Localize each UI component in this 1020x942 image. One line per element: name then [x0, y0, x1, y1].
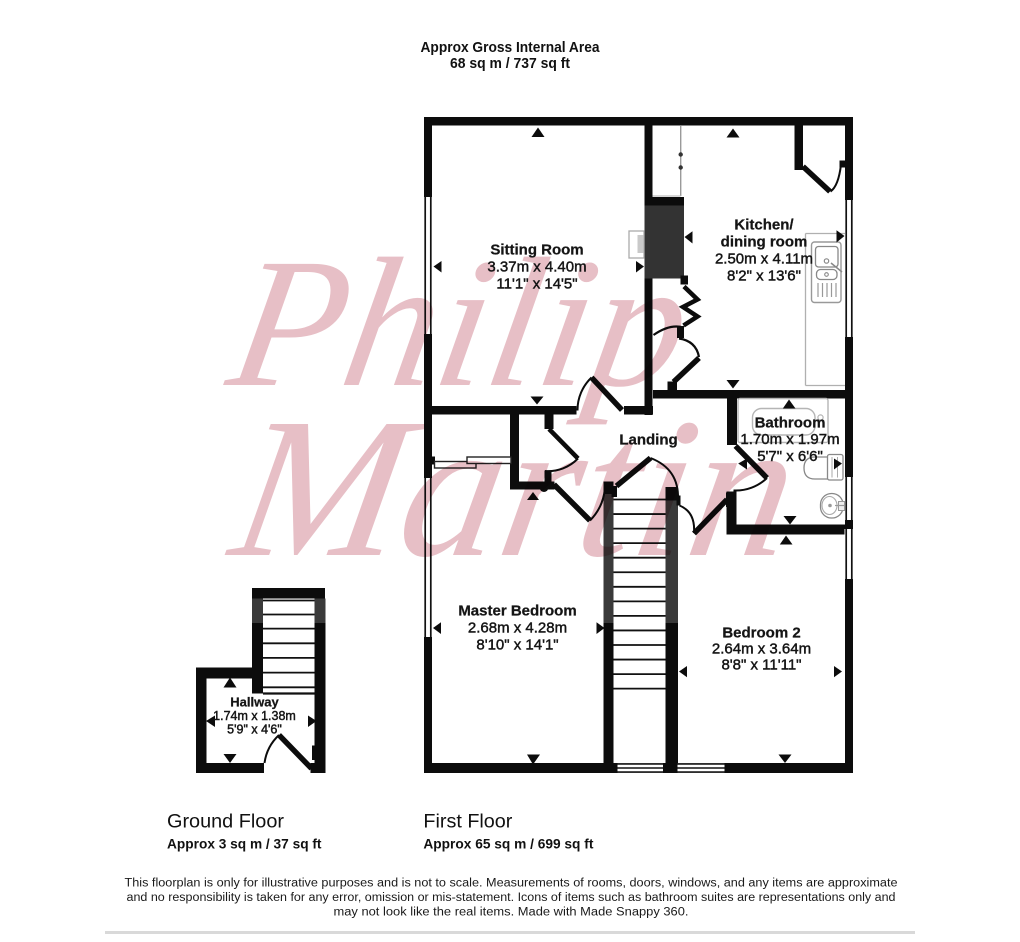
svg-text:Bathroom: Bathroom: [755, 415, 826, 432]
svg-text:Bedroom 2: Bedroom 2: [722, 625, 800, 642]
svg-text:dining room: dining room: [721, 234, 808, 251]
svg-text:1.74m x 1.38m: 1.74m x 1.38m: [213, 709, 296, 723]
svg-text:8'10" x 14'1": 8'10" x 14'1": [476, 637, 558, 654]
svg-text:5'9" x 4'6": 5'9" x 4'6": [227, 723, 282, 737]
svg-text:Master Bedroom: Master Bedroom: [458, 603, 576, 620]
svg-text:3.37m x 4.40m: 3.37m x 4.40m: [487, 259, 586, 276]
svg-text:8'8" x 11'11": 8'8" x 11'11": [721, 657, 801, 674]
svg-text:Approx 3 sq m / 37 sq ft: Approx 3 sq m / 37 sq ft: [167, 836, 322, 852]
svg-text:First Floor: First Floor: [423, 812, 513, 833]
svg-text:Martin: Martin: [216, 376, 814, 598]
svg-text:Kitchen/: Kitchen/: [734, 217, 794, 234]
svg-text:Approx Gross Internal Area: Approx Gross Internal Area: [421, 39, 601, 56]
svg-text:This floorplan is only for ill: This floorplan is only for illustrative …: [125, 878, 898, 890]
svg-text:5'7" x 6'6": 5'7" x 6'6": [757, 448, 823, 465]
svg-text:68 sq m / 737 sq ft: 68 sq m / 737 sq ft: [450, 55, 570, 72]
svg-text:and no responsibility is taken: and no responsibility is taken for any e…: [127, 892, 896, 904]
svg-text:11'1" x 14'5": 11'1" x 14'5": [496, 276, 577, 293]
svg-text:8'2" x 13'6": 8'2" x 13'6": [727, 268, 801, 285]
svg-text:2.64m x 3.64m: 2.64m x 3.64m: [712, 641, 811, 658]
svg-text:Approx 65 sq m / 699 sq ft: Approx 65 sq m / 699 sq ft: [423, 836, 593, 852]
svg-text:Ground Floor: Ground Floor: [167, 812, 285, 833]
svg-text:1.70m x 1.97m: 1.70m x 1.97m: [740, 431, 839, 448]
svg-text:Landing: Landing: [619, 432, 677, 449]
svg-text:2.50m x 4.11m: 2.50m x 4.11m: [715, 251, 813, 268]
svg-text:may not look like the real ite: may not look like the real items. Made w…: [334, 907, 689, 919]
svg-text:2.68m x 4.28m: 2.68m x 4.28m: [468, 620, 567, 637]
svg-text:Sitting Room: Sitting Room: [490, 242, 583, 259]
svg-text:Hallway: Hallway: [230, 695, 279, 710]
